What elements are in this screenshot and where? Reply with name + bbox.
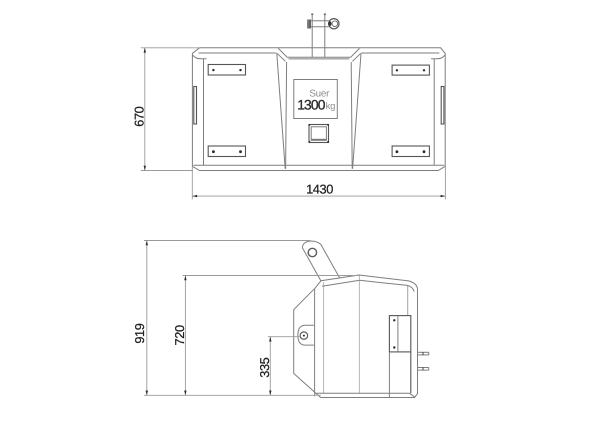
svg-text:335: 335 — [257, 357, 272, 377]
svg-text:1300: 1300 — [297, 98, 326, 113]
svg-text:1430: 1430 — [306, 182, 333, 197]
svg-text:kg: kg — [326, 101, 336, 112]
svg-text:720: 720 — [172, 325, 187, 345]
svg-text:919: 919 — [132, 323, 147, 343]
svg-text:670: 670 — [131, 106, 146, 126]
